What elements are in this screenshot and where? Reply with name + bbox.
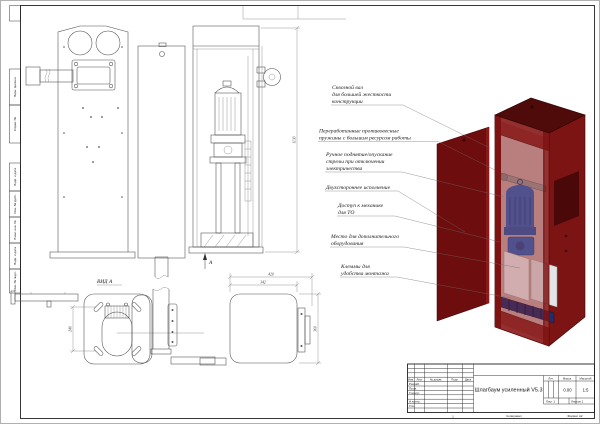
tb-col: Лист bbox=[416, 378, 423, 382]
dim-width-outer: 420 bbox=[268, 273, 274, 277]
height-dimension: 1130 bbox=[261, 26, 300, 254]
tb-col: Подп. bbox=[451, 378, 459, 382]
iso-door-panel bbox=[437, 127, 489, 321]
iso-cabinet-right-face bbox=[549, 115, 585, 346]
frame-field-label: Инв. № подл. bbox=[13, 271, 17, 290]
iso-cabinet-front-face bbox=[495, 115, 549, 346]
tb-scale-value: 1:5 bbox=[583, 388, 589, 393]
dim-depth: 360 bbox=[314, 326, 318, 332]
svg-text:стрелы при отключении: стрелы при отключении bbox=[326, 159, 385, 165]
handwheel bbox=[257, 67, 281, 87]
svg-text:электричества: электричества bbox=[326, 166, 363, 172]
fold-mark: 1 bbox=[452, 415, 454, 419]
svg-text:конструкции: конструкции bbox=[332, 99, 363, 105]
frame-field-label: Справ. № bbox=[13, 116, 17, 131]
format-label: Формат А2 bbox=[567, 414, 582, 418]
frame-field-label: Подп. и дата bbox=[13, 168, 17, 187]
svg-text:Место для дополнительного: Место для дополнительного bbox=[330, 233, 399, 240]
tb-row: Т.контр. bbox=[409, 391, 420, 395]
view-direction-arrow: А bbox=[203, 253, 213, 269]
svg-text:Ручное поднятие/опускание: Ручное поднятие/опускание bbox=[325, 151, 393, 158]
drawing-sheet: Перв. примен. Справ. № Подп. и дата Инв.… bbox=[0, 0, 600, 424]
motor-drawing bbox=[210, 81, 246, 163]
svg-text:для ТО: для ТО bbox=[338, 209, 354, 216]
tb-col: Дата bbox=[465, 378, 472, 382]
svg-text:Переработанные противовесные: Переработанные противовесные bbox=[318, 128, 399, 135]
boom-column-view: А bbox=[132, 253, 215, 364]
frame-left-strip: Перв. примен. Справ. № Подп. и дата Инв.… bbox=[10, 6, 21, 294]
svg-text:Двухстороннее исполнение: Двухстороннее исполнение bbox=[325, 185, 391, 191]
tb-row: Разраб. bbox=[409, 382, 420, 386]
frame-field-label: Инв. № дубл. bbox=[13, 194, 17, 213]
iso-door-edge bbox=[486, 127, 489, 304]
annotations: Сквозной вал для большей жесткости конст… bbox=[318, 84, 520, 298]
tb-col: № докум. bbox=[430, 378, 443, 382]
copied-label: Копировал bbox=[506, 414, 521, 418]
svg-text:Сквозной вал: Сквозной вал bbox=[332, 84, 364, 91]
tb-mass-label: Масса bbox=[563, 376, 572, 380]
title-block: Изм. Лист № докум. Подп. Дата Разраб. Пр… bbox=[408, 364, 595, 419]
drawing-title: Шлагбаум усиленный V5.3 bbox=[474, 387, 542, 394]
dim-cabinet-height: 1130 bbox=[293, 136, 297, 143]
tb-row: Утв. bbox=[409, 404, 415, 408]
drawing-canvas: Перв. примен. Справ. № Подп. и дата Инв.… bbox=[1, 1, 600, 424]
view-a: ВИД А 240 bbox=[11, 279, 204, 364]
svg-text:удобства монтажа: удобства монтажа bbox=[340, 270, 389, 277]
door-screw bbox=[463, 139, 466, 142]
tb-mass-value: 0.00 bbox=[563, 388, 572, 393]
tb-row: Н.контр. bbox=[409, 400, 421, 404]
tb-col: Изм. bbox=[408, 378, 414, 382]
tb-sheets: Листов 1 bbox=[571, 400, 584, 404]
svg-text:оборудования: оборудования bbox=[331, 240, 364, 247]
dim-width-inner: 342 bbox=[260, 281, 266, 285]
frame-field-label: Взам. инв. № bbox=[13, 220, 17, 240]
svg-text:Клеммы для: Клеммы для bbox=[340, 263, 370, 270]
frame-field-label: Перв. примен. bbox=[13, 77, 17, 98]
svg-text:для большей жесткости: для большей жесткости bbox=[332, 91, 391, 98]
frame-field-label: Подп. и дата bbox=[13, 247, 17, 266]
view-a-label: ВИД А bbox=[97, 279, 113, 285]
annotation-extra-equipment: Место для дополнительного оборудования bbox=[330, 233, 520, 268]
front-view bbox=[26, 26, 135, 258]
door-panel-view bbox=[138, 43, 185, 258]
side-view: 1130 bbox=[189, 26, 300, 254]
tb-lit-label: Лит. bbox=[548, 376, 553, 380]
dim-base-slots: 240 bbox=[69, 326, 73, 332]
iso-view bbox=[437, 98, 585, 346]
arrow-a-label: А bbox=[208, 260, 213, 266]
tb-row: Пров. bbox=[409, 386, 417, 390]
svg-text:Доступ к механике: Доступ к механике bbox=[337, 203, 384, 209]
top-view: 420 342 360 bbox=[200, 273, 321, 366]
svg-text:пружины с большим ресурсом раб: пружины с большим ресурсом работы bbox=[319, 135, 411, 142]
base-dimension: 240 bbox=[69, 305, 97, 353]
tb-sheet: Лист 1 bbox=[546, 400, 555, 404]
tb-scale-label: Масштаб bbox=[580, 376, 592, 380]
